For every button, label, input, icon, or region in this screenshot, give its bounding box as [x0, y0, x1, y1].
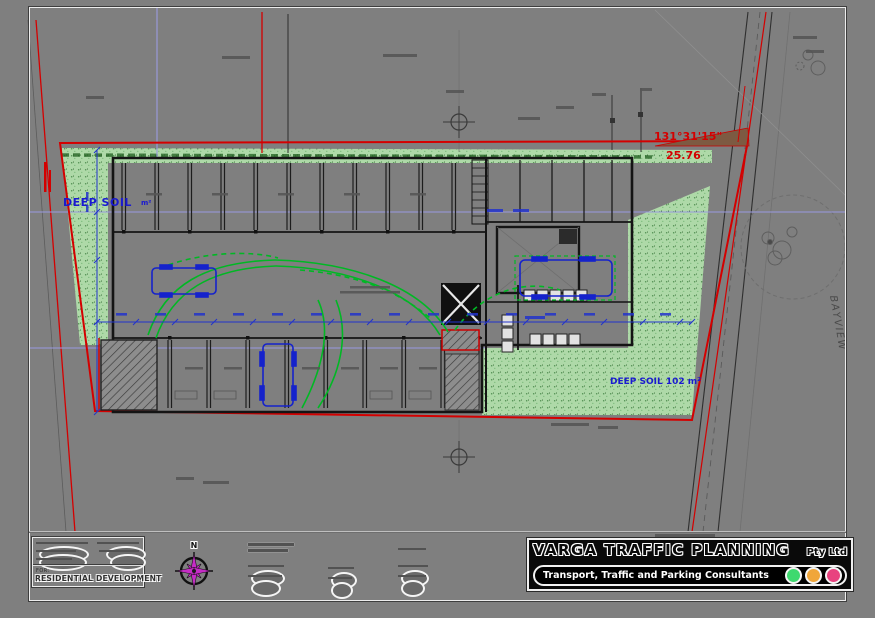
title-strip-divider — [29, 531, 846, 533]
company-tagline-pill: Transport, Traffic and Parking Consultan… — [533, 565, 847, 586]
sheet-border-frame — [29, 7, 846, 601]
company-title-block: VARGA TRAFFIC PLANNING Pty Ltd Transport… — [527, 538, 853, 591]
compass-star — [177, 554, 211, 588]
company-tagline: Transport, Traffic and Parking Consultan… — [543, 570, 782, 581]
compass-rose: N — [171, 538, 217, 594]
traffic-light-red-icon — [825, 567, 842, 584]
north-label: N — [191, 541, 198, 550]
drawing-sheet: DEEP SOIL m² DEEP SOIL 102 m² 131°31'15"… — [0, 0, 875, 618]
traffic-light-green-icon — [785, 567, 802, 584]
drawing-info-box: FOR: RESIDENTIAL DEVELOPMENT — [32, 537, 144, 587]
traffic-light-amber-icon — [805, 567, 822, 584]
company-name: VARGA TRAFFIC PLANNING — [533, 541, 790, 559]
company-suffix: Pty Ltd — [807, 547, 847, 558]
project-title: RESIDENTIAL DEVELOPMENT — [35, 574, 162, 583]
info-box-divider — [33, 564, 143, 565]
